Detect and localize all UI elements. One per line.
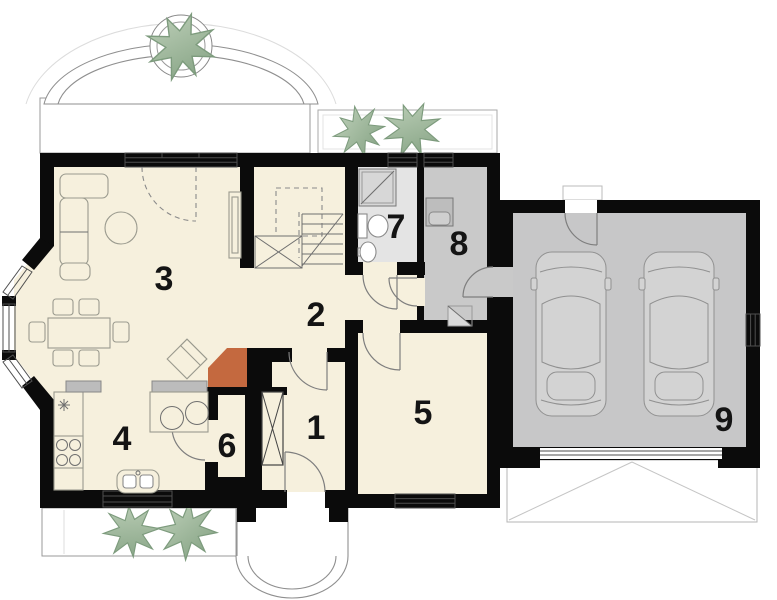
kitchen-sink: [117, 470, 159, 493]
countertop-pass: [66, 381, 101, 392]
room-label-8: 8: [450, 225, 469, 263]
dining-chair: [29, 322, 45, 342]
tv-bench: [229, 192, 241, 258]
dining-chair: [79, 350, 99, 366]
boiler: [426, 198, 453, 226]
car-icon: [639, 252, 719, 416]
dining-chair: [53, 299, 73, 315]
shower: [359, 169, 396, 206]
room-label-1: 1: [307, 409, 326, 447]
room-label-7: 7: [387, 208, 406, 246]
room-label-6: 6: [218, 427, 237, 465]
car-icon: [531, 252, 611, 416]
coffee-table: [105, 212, 137, 244]
cooktop: [54, 436, 83, 468]
dining-chair: [79, 299, 99, 315]
countertop-appliance: [152, 381, 207, 392]
dining-table: [48, 318, 110, 348]
room-label-2: 2: [307, 296, 326, 334]
floor-plan: 1 2 3 4 5 6 7 8 9: [0, 0, 777, 600]
room-label-3: 3: [155, 260, 174, 298]
room-label-5: 5: [414, 394, 433, 432]
garage-door-landing: [563, 186, 602, 200]
garage-gate: [540, 448, 722, 459]
room-label-4: 4: [113, 420, 132, 458]
wardrobe: [262, 392, 283, 465]
room-label-9: 9: [715, 401, 734, 439]
washer-counter: [150, 392, 209, 432]
dining-chair: [53, 350, 73, 366]
toilet: [358, 214, 388, 238]
driveway: [507, 460, 757, 522]
dining-chair: [113, 322, 129, 342]
front-terrace: [40, 98, 310, 153]
